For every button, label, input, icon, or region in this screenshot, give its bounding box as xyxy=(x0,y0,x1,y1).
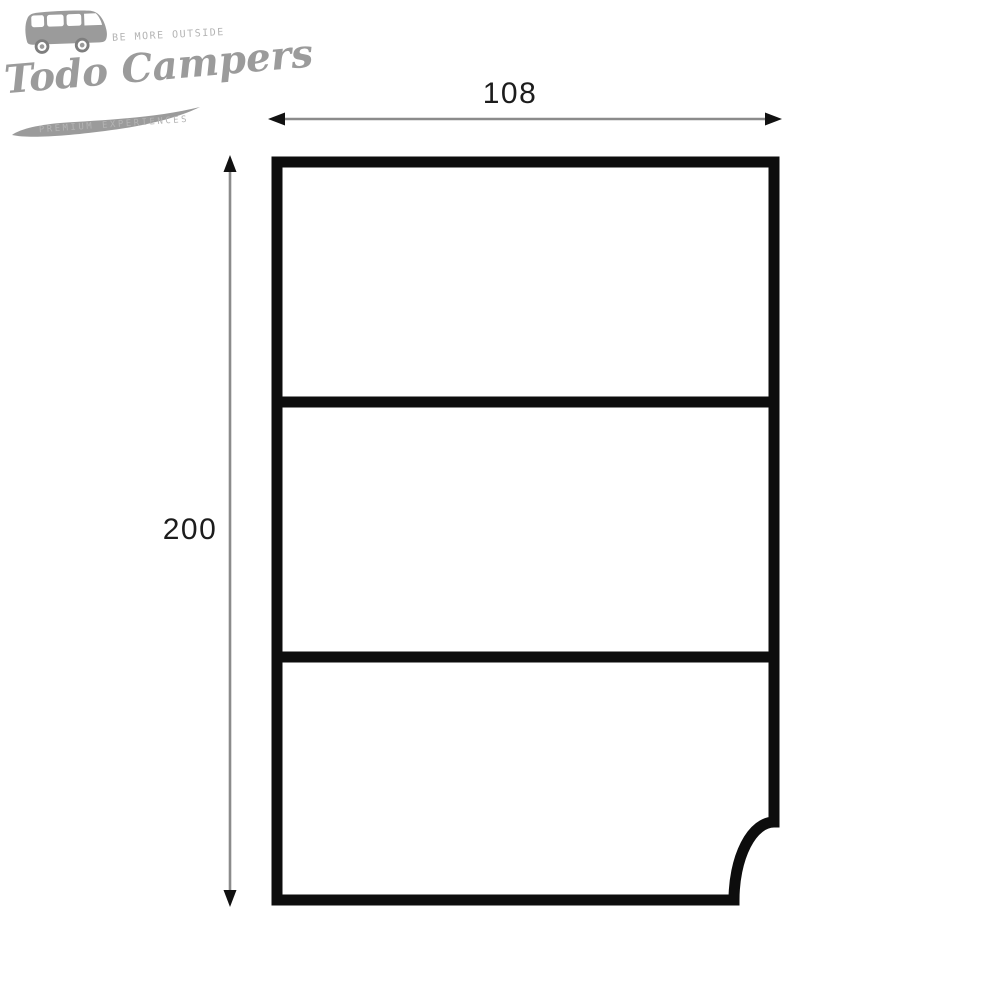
product-diagram-page: BE MORE OUTSIDE Todo Campers PREMIUM EXP… xyxy=(0,0,1000,1000)
arrow-down-icon xyxy=(224,890,237,907)
panel-diagram xyxy=(0,0,1000,1000)
arrow-up-icon xyxy=(224,155,237,172)
width-dimension-label: 108 xyxy=(460,77,560,111)
height-dimension-label: 200 xyxy=(140,513,240,547)
width-dimension-arrow xyxy=(268,113,782,126)
panel-outline xyxy=(277,162,774,900)
arrow-left-icon xyxy=(268,113,285,126)
arrow-right-icon xyxy=(765,113,782,126)
